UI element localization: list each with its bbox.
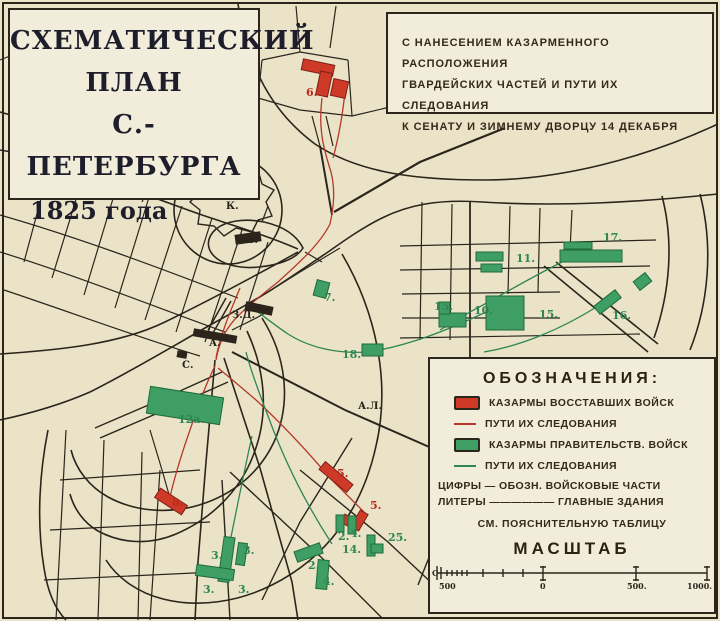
government-barracks-block [439,313,466,327]
government-barracks-block [481,264,502,272]
unit-number-label: 6. [306,86,317,99]
unit-number-label: 8. [172,496,183,509]
building-letter-label: А. [209,338,221,349]
legend-note-line: ЦИФРЫ — ОБОЗН. ВОЙСКОВЫЕ ЧАСТИ [438,480,714,492]
unit-number-label: 11. [516,252,535,265]
legend-title: ОБОЗНАЧЕНИЯ: [430,370,714,388]
scale-tick-label: С [432,568,438,578]
unit-number-label: 2. [308,559,319,572]
subtitle-line: ГВАРДЕЙСКИХ ЧАСТЕЙ И ПУТИ ИХ СЛЕДОВАНИЯ [402,75,698,117]
map-page: 6.8.5.5.17.11.7.18.12а.15.10.15.16.3.3.3… [0,0,720,621]
building-letter-label: С. [182,360,193,371]
unit-number-label: 25. [388,531,407,544]
unit-number-label: 15. [434,300,453,313]
legend-item: КАЗАРМЫ ПРАВИТЕЛЬСТВ. ВОЙСК [430,438,714,452]
rebel-barracks-block [330,79,348,99]
unit-number-label: 4. [350,527,361,540]
unit-number-label: 3. [211,549,222,562]
map-title-line: СХЕМАТИЧЕСКИЙ [10,20,258,62]
legend-item: КАЗАРМЫ ВОССТАВШИХ ВОЙСК [430,396,714,410]
unit-number-label: 7. [324,291,335,304]
legend-see-note: СМ. ПОЯСНИТЕЛЬНУЮ ТАБЛИЦУ [430,518,714,530]
unit-number-label: 5. [370,499,381,512]
government-barracks-block [476,252,503,261]
subtitle-line: С НАНЕСЕНИЕМ КАЗАРМЕННОГО РАСПОЛОЖЕНИЯ [402,33,698,75]
legend-items: КАЗАРМЫ ВОССТАВШИХ ВОЙСКПУТИ ИХ СЛЕДОВАН… [430,396,714,472]
legend-item-label: КАЗАРМЫ ВОССТАВШИХ ВОЙСК [489,397,674,409]
legend-notes: ЦИФРЫ — ОБОЗН. ВОЙСКОВЫЕ ЧАСТИЛИТЕРЫ ———… [430,480,714,508]
unit-number-label: 3. [243,544,254,557]
legend-item-label: КАЗАРМЫ ПРАВИТЕЛЬСТВ. ВОЙСК [489,439,688,451]
building-letter-label: Б. [246,235,258,246]
map-title-line: ПЛАН [10,62,258,104]
scale-tick-label: 0 [540,581,546,591]
rebel-route-swatch [454,423,476,425]
scale-tick-label: 500 [439,581,456,591]
map-legend-box: ОБОЗНАЧЕНИЯ: КАЗАРМЫ ВОССТАВШИХ ВОЙСКПУТ… [428,357,716,614]
subtitle-line: К СЕНАТУ И ЗИМНЕМУ ДВОРЦУ 14 ДЕКАБРЯ [402,117,698,138]
government-barracks-block [564,242,592,249]
map-title-box: СХЕМАТИЧЕСКИЙ ПЛАН С.-ПЕТЕРБУРГА 1825 го… [8,8,260,200]
unit-number-label: 3. [203,583,214,596]
scale-bar: С5000500.1000. [431,563,713,593]
rebel-barracks-swatch [454,396,480,410]
legend-note-line: ЛИТЕРЫ —————— ГЛАВНЫЕ ЗДАНИЯ [438,496,714,508]
government-barracks-block [633,273,652,291]
scale-title: МАСШТАБ [430,539,714,559]
unit-number-label: 15. [539,308,558,321]
government-barracks-swatch [454,438,480,452]
unit-number-label: 16. [612,309,631,322]
legend-item: ПУТИ ИХ СЛЕДОВАНИЯ [430,418,714,430]
unit-number-label: 10. [474,304,493,317]
unit-number-label: 2. [338,530,349,543]
government-route-swatch [454,465,476,467]
scale-tick-label: 1000. [687,581,712,591]
building-letter-label: З.Д. [232,310,255,321]
legend-item: ПУТИ ИХ СЛЕДОВАНИЯ [430,460,714,472]
unit-number-label: 14. [342,543,361,556]
unit-number-label: 12а. [178,413,204,426]
unit-number-label: 4. [323,575,334,588]
scale-tick-label: 500. [627,581,647,591]
government-barracks-block [371,544,383,553]
unit-number-label: 18. [342,348,361,361]
scale-labels: С5000500.1000. [432,568,712,591]
government-barracks-block [362,344,383,356]
unit-number-label: 3. [238,583,249,596]
legend-item-label: ПУТИ ИХ СЛЕДОВАНИЯ [485,460,617,472]
legend-item-label: ПУТИ ИХ СЛЕДОВАНИЯ [485,418,617,430]
map-title-line: С.-ПЕТЕРБУРГА [10,104,258,188]
unit-number-label: 5. [337,467,348,480]
map-title-year: 1825 года [10,196,258,225]
government-barracks-block [560,250,622,262]
unit-number-label: 17. [603,231,622,244]
building-letter-label: А.Л. [358,401,382,412]
rebel-barracks-block [316,71,333,97]
map-subtitle-box: С НАНЕСЕНИЕМ КАЗАРМЕННОГО РАСПОЛОЖЕНИЯ Г… [386,12,714,114]
